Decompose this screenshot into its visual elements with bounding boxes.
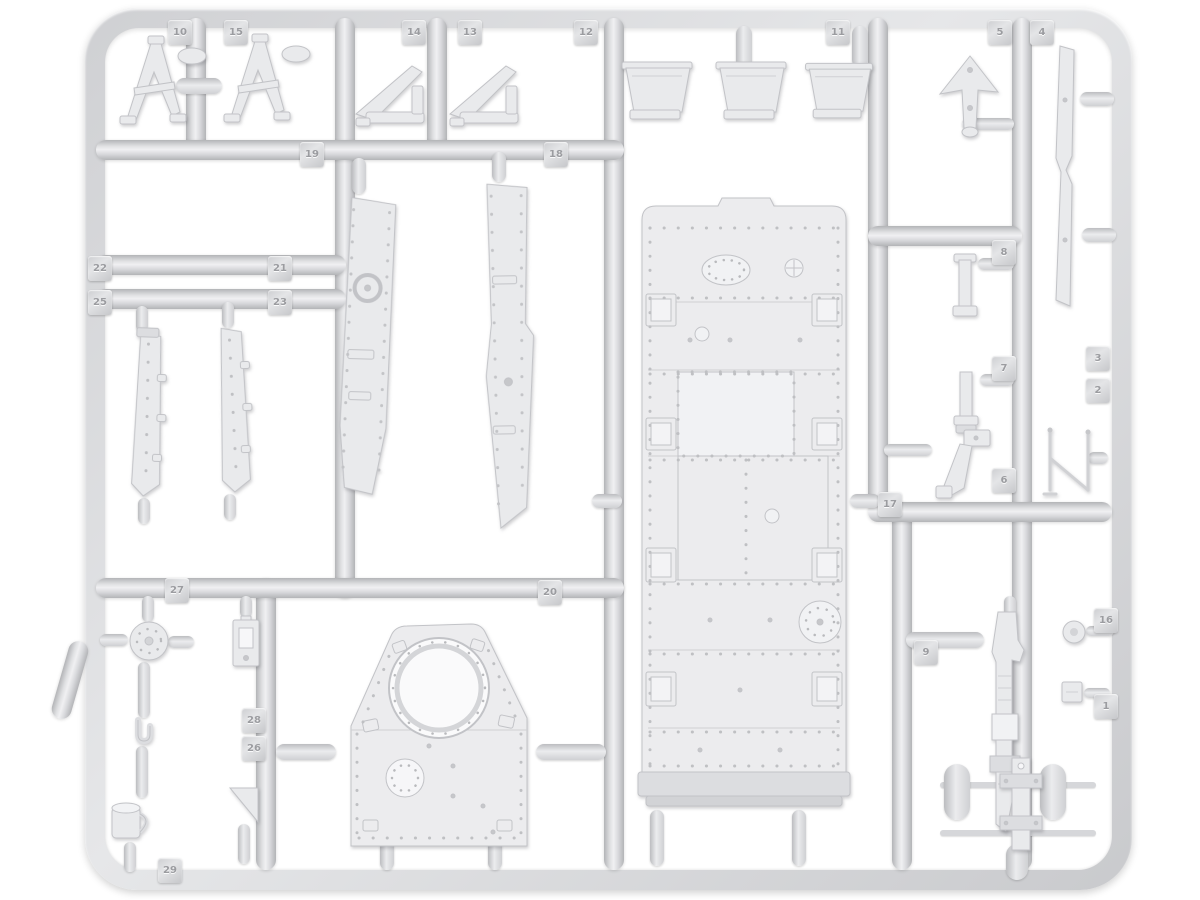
part-a-frame-bracket-1 <box>112 30 212 140</box>
part-number-tag-16: 16 <box>1094 608 1118 633</box>
part-number-tag-6: 6 <box>992 468 1016 493</box>
part-mudguard-3 <box>796 52 882 134</box>
part-strap-assembly <box>996 754 1046 854</box>
part-number-tag-2: 2 <box>1086 378 1110 403</box>
sprue-gate <box>100 634 128 646</box>
part-number-tag-26: 26 <box>242 736 266 761</box>
part-fender-strip-2 <box>205 321 259 501</box>
part-wedge-block <box>226 782 262 826</box>
part-number-tag-9: 9 <box>914 640 938 665</box>
sprue-photo: 10 15 14 13 12 11 5 4 19 18 22 21 25 23 … <box>0 0 1200 900</box>
part-support-strap <box>920 424 996 506</box>
part-number-tag-14: 14 <box>402 20 426 45</box>
part-number-tag-21: 21 <box>268 256 292 281</box>
part-number-tag-18: 18 <box>544 142 568 167</box>
part-track-guard-left <box>314 187 418 511</box>
part-antenna-frame <box>1036 424 1106 506</box>
sprue-gate <box>238 824 250 864</box>
part-number-tag-22: 22 <box>88 256 112 281</box>
part-number-tag-3: 3 <box>1086 346 1110 371</box>
sprue-runner-v6 <box>892 502 912 870</box>
part-towing-hook <box>128 716 160 748</box>
sprue-gate <box>138 662 150 718</box>
part-number-tag-7: 7 <box>992 356 1016 381</box>
part-mudguard-2 <box>706 52 796 134</box>
sprue-gate <box>1082 228 1116 242</box>
part-curved-fender-2 <box>442 52 534 140</box>
part-curved-fender-1 <box>348 52 440 140</box>
part-number-tag-13: 13 <box>458 20 482 45</box>
part-number-tag-27: 27 <box>165 578 189 603</box>
sprue-gate <box>124 842 136 872</box>
part-long-blade-strip <box>1046 40 1086 315</box>
part-number-tag-10: 10 <box>168 20 192 45</box>
part-number-tag-17: 17 <box>878 492 902 517</box>
part-mount-bracket <box>226 614 266 672</box>
sprue-gate <box>944 764 970 820</box>
part-number-tag-11: 11 <box>826 20 850 45</box>
part-number-tag-8: 8 <box>992 240 1016 265</box>
sprue-gate <box>136 746 148 798</box>
part-number-tag-28: 28 <box>242 708 266 733</box>
part-bucket <box>106 796 156 844</box>
part-number-tag-12: 12 <box>574 20 598 45</box>
part-mudguard-1 <box>612 52 702 134</box>
part-superstructure-plate <box>333 606 543 862</box>
part-number-tag-15: 15 <box>224 20 248 45</box>
part-number-tag-5: 5 <box>988 20 1012 45</box>
part-idler-disc <box>126 618 172 664</box>
part-square-plug <box>1058 678 1086 706</box>
part-number-tag-20: 20 <box>538 580 562 605</box>
part-fender-strip-1 <box>119 325 173 505</box>
part-track-guard-right <box>451 175 549 543</box>
sprue-runner-h3 <box>96 289 346 309</box>
part-small-bracket-1 <box>948 250 982 326</box>
part-round-knob <box>1060 618 1088 646</box>
part-number-tag-29: 29 <box>158 858 182 883</box>
part-hull-top-deck <box>620 190 868 826</box>
part-number-tag-25: 25 <box>88 290 112 315</box>
sprue-gate <box>276 744 336 760</box>
part-number-tag-19: 19 <box>300 142 324 167</box>
part-number-tag-23: 23 <box>268 290 292 315</box>
sprue-gate <box>592 494 622 508</box>
part-number-tag-4: 4 <box>1030 20 1054 45</box>
sprue-runner-h2 <box>96 255 346 275</box>
sprue-gate <box>536 744 606 760</box>
part-wing-bracket <box>930 48 1010 138</box>
part-number-tag-1: 1 <box>1094 694 1118 719</box>
